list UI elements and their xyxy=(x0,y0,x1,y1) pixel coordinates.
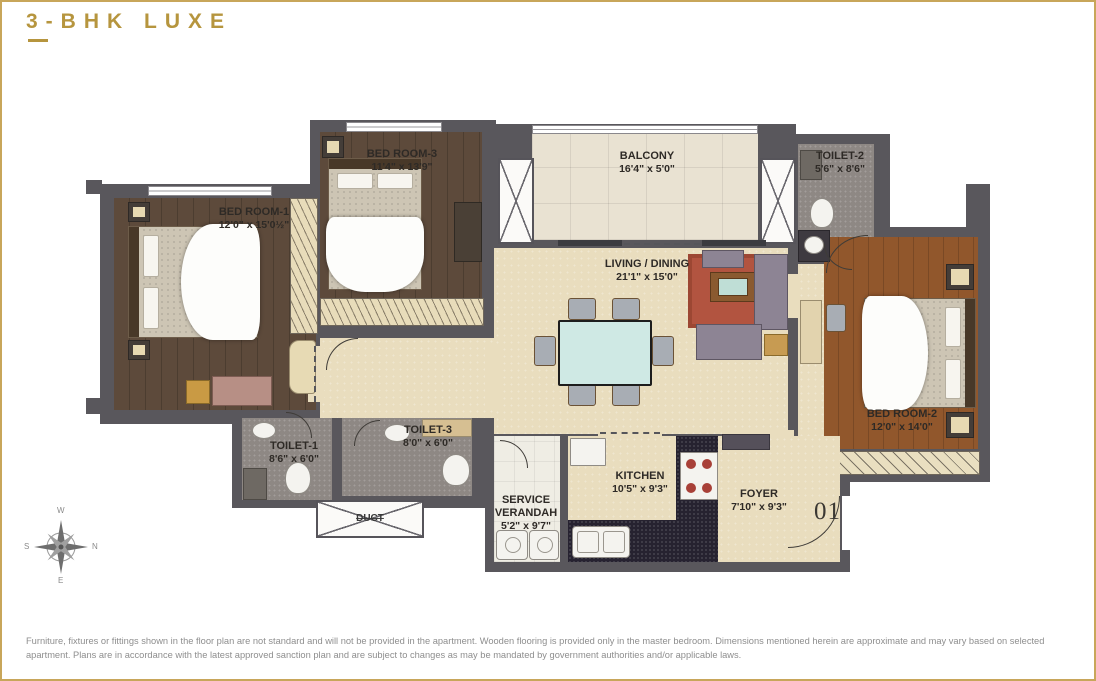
label-bedroom3: BED ROOM-3 11'4" x 13'9" xyxy=(367,148,437,174)
page-title: 3-BHK LUXE xyxy=(26,10,232,34)
bedroom2-nightstand-top xyxy=(946,264,974,290)
toilet1-wc xyxy=(285,462,311,494)
hob-burner xyxy=(686,459,696,469)
laundry-sink xyxy=(529,530,559,560)
unit-number: 01 xyxy=(814,498,841,526)
bedroom2-bed xyxy=(864,298,976,408)
room-dims: 5'2" x 9'7" xyxy=(493,520,559,533)
room-dims: 12'0" x 14'0" xyxy=(867,421,937,434)
room-name: BALCONY xyxy=(619,150,675,163)
bedroom1-bench xyxy=(212,376,272,406)
machine-door xyxy=(505,537,521,553)
label-toilet3: TOILET-3 8'0" x 6'0" xyxy=(403,424,453,450)
title-underline xyxy=(28,39,48,42)
room-name: SERVICE VERANDAH xyxy=(493,494,559,520)
bedroom3-dresser xyxy=(454,202,482,262)
bedroom1-door-dash xyxy=(314,346,316,402)
bedroom1-bed xyxy=(128,226,258,338)
bed-pillow xyxy=(143,287,159,329)
duct-label: DUCT xyxy=(356,513,384,524)
compass-north: N xyxy=(92,542,98,551)
room-dims: 16'4" x 5'0" xyxy=(619,163,675,176)
bedroom3-bed xyxy=(328,158,422,290)
dining-chair xyxy=(568,384,596,406)
compass-west: W xyxy=(57,506,65,515)
room-name: KITCHEN xyxy=(612,470,668,483)
label-service-verandah: SERVICE VERANDAH 5'2" x 9'7" xyxy=(493,494,559,533)
balcony-slider-track xyxy=(624,243,700,245)
bedroom3-window xyxy=(346,122,442,132)
coffee-table-top xyxy=(718,278,748,296)
bed-pillow xyxy=(945,307,961,347)
room-name: TOILET-1 xyxy=(269,440,319,453)
duct-shaft: DUCT xyxy=(316,500,424,538)
toilet2-wc xyxy=(810,198,834,228)
dining-chair xyxy=(534,336,556,366)
washing-machine xyxy=(496,530,528,560)
sink-basin xyxy=(603,531,625,553)
disclaimer-text: Furniture, fixtures or fittings shown in… xyxy=(26,634,1078,663)
label-living-dining: LIVING / DINING 21'1" x 15'0" xyxy=(605,258,689,284)
room-name: LIVING / DINING xyxy=(605,258,689,271)
duct-column-right xyxy=(760,158,796,244)
hob-burner xyxy=(702,459,712,469)
room-name: TOILET-3 xyxy=(403,424,453,437)
label-toilet2: TOILET-2 5'6" x 8'6" xyxy=(815,150,865,176)
living-sofa-side xyxy=(754,254,788,330)
hob-burner xyxy=(686,483,696,493)
label-balcony: BALCONY 16'4" x 5'0" xyxy=(619,150,675,176)
opening-passage-living xyxy=(485,344,503,408)
room-name: TOILET-2 xyxy=(815,150,865,163)
room-dims: 21'1" x 15'0" xyxy=(605,271,689,284)
room-name: BED ROOM-2 xyxy=(867,408,937,421)
living-ottoman xyxy=(764,334,788,356)
bed-pillow xyxy=(337,173,373,189)
label-bedroom2: BED ROOM-2 12'0" x 14'0" xyxy=(867,408,937,434)
sink-basin xyxy=(577,531,599,553)
bedroom3-nightstand xyxy=(322,136,344,158)
dining-chair xyxy=(652,336,674,366)
dining-table xyxy=(558,320,652,386)
hob-burner xyxy=(702,483,712,493)
label-kitchen: KITCHEN 10'5" x 9'3" xyxy=(612,470,668,496)
sink-bowl xyxy=(537,537,553,553)
floor-plan-page: 3-BHK LUXE xyxy=(0,0,1096,681)
compass-star xyxy=(22,508,100,586)
dining-chair xyxy=(612,298,640,320)
bed-headboard xyxy=(965,299,975,407)
bedroom1-ottoman xyxy=(186,380,210,404)
bed-duvet xyxy=(181,224,260,340)
room-dims: 12'0" x 15'0½" xyxy=(219,219,289,232)
room-name: BED ROOM-1 xyxy=(219,206,289,219)
balcony-slider-panel-left xyxy=(558,240,622,246)
bedroom1-chaise xyxy=(289,340,316,394)
room-dims: 11'4" x 13'9" xyxy=(367,161,437,174)
toilet1-shower-mat xyxy=(243,468,267,500)
entry-door-gap xyxy=(842,496,852,550)
bedroom1-wardrobe xyxy=(290,198,318,334)
bedroom1-nightstand-top xyxy=(128,202,150,222)
bed-pillow xyxy=(143,235,159,277)
room-dims: 5'6" x 8'6" xyxy=(815,163,865,176)
label-bedroom1: BED ROOM-1 12'0" x 15'0½" xyxy=(219,206,289,232)
bedroom3-wardrobe xyxy=(320,298,484,326)
room-name: FOYER xyxy=(731,488,787,501)
label-foyer: FOYER 7'10" x 9'3" xyxy=(731,488,787,514)
bed-headboard xyxy=(129,227,139,337)
balcony-railing xyxy=(532,125,758,134)
living-sofa-main xyxy=(696,324,762,360)
room-name: BED ROOM-3 xyxy=(367,148,437,161)
duct-column-left xyxy=(498,158,534,244)
bed-duvet xyxy=(862,296,928,410)
bed-duvet xyxy=(326,217,424,292)
kitchen-fridge xyxy=(570,438,606,466)
room-dims: 8'0" x 6'0" xyxy=(403,437,453,450)
toilet1-washbasin xyxy=(252,422,276,439)
bedroom1-window xyxy=(148,186,272,196)
bedroom1-nightstand-bottom xyxy=(128,340,150,360)
wall-nub-left-top xyxy=(86,180,102,194)
bedroom2-chair xyxy=(826,304,846,332)
wall-nub-right-top xyxy=(966,184,990,230)
toilet3-wc xyxy=(442,454,470,486)
compass-south: S xyxy=(24,542,29,551)
dining-chair xyxy=(612,384,640,406)
room-dims: 10'5" x 9'3" xyxy=(612,483,668,496)
opening-living-corridor xyxy=(786,274,800,318)
balcony-slider-panel-right xyxy=(702,240,766,246)
wall-nub-left-bottom xyxy=(86,398,102,414)
label-toilet1: TOILET-1 8'6" x 6'0" xyxy=(269,440,319,466)
living-armchair xyxy=(702,250,744,268)
bedroom2-dresser xyxy=(800,300,822,364)
bed-pillow xyxy=(377,173,413,189)
room-dims: 8'6" x 6'0" xyxy=(269,453,319,466)
bedroom2-nightstand-bottom xyxy=(946,412,974,438)
compass-east: E xyxy=(58,576,63,585)
kitchen-sink xyxy=(572,526,630,558)
bed-pillow xyxy=(945,359,961,399)
kitchen-opening-dash xyxy=(600,432,660,434)
kitchen-hob xyxy=(680,452,718,500)
room-dims: 7'10" x 9'3" xyxy=(731,501,787,514)
dining-chair xyxy=(568,298,596,320)
toilet2-washbasin xyxy=(804,236,824,254)
foyer-shoe-cabinet xyxy=(722,434,770,450)
compass-rose: W N E S xyxy=(22,508,100,586)
